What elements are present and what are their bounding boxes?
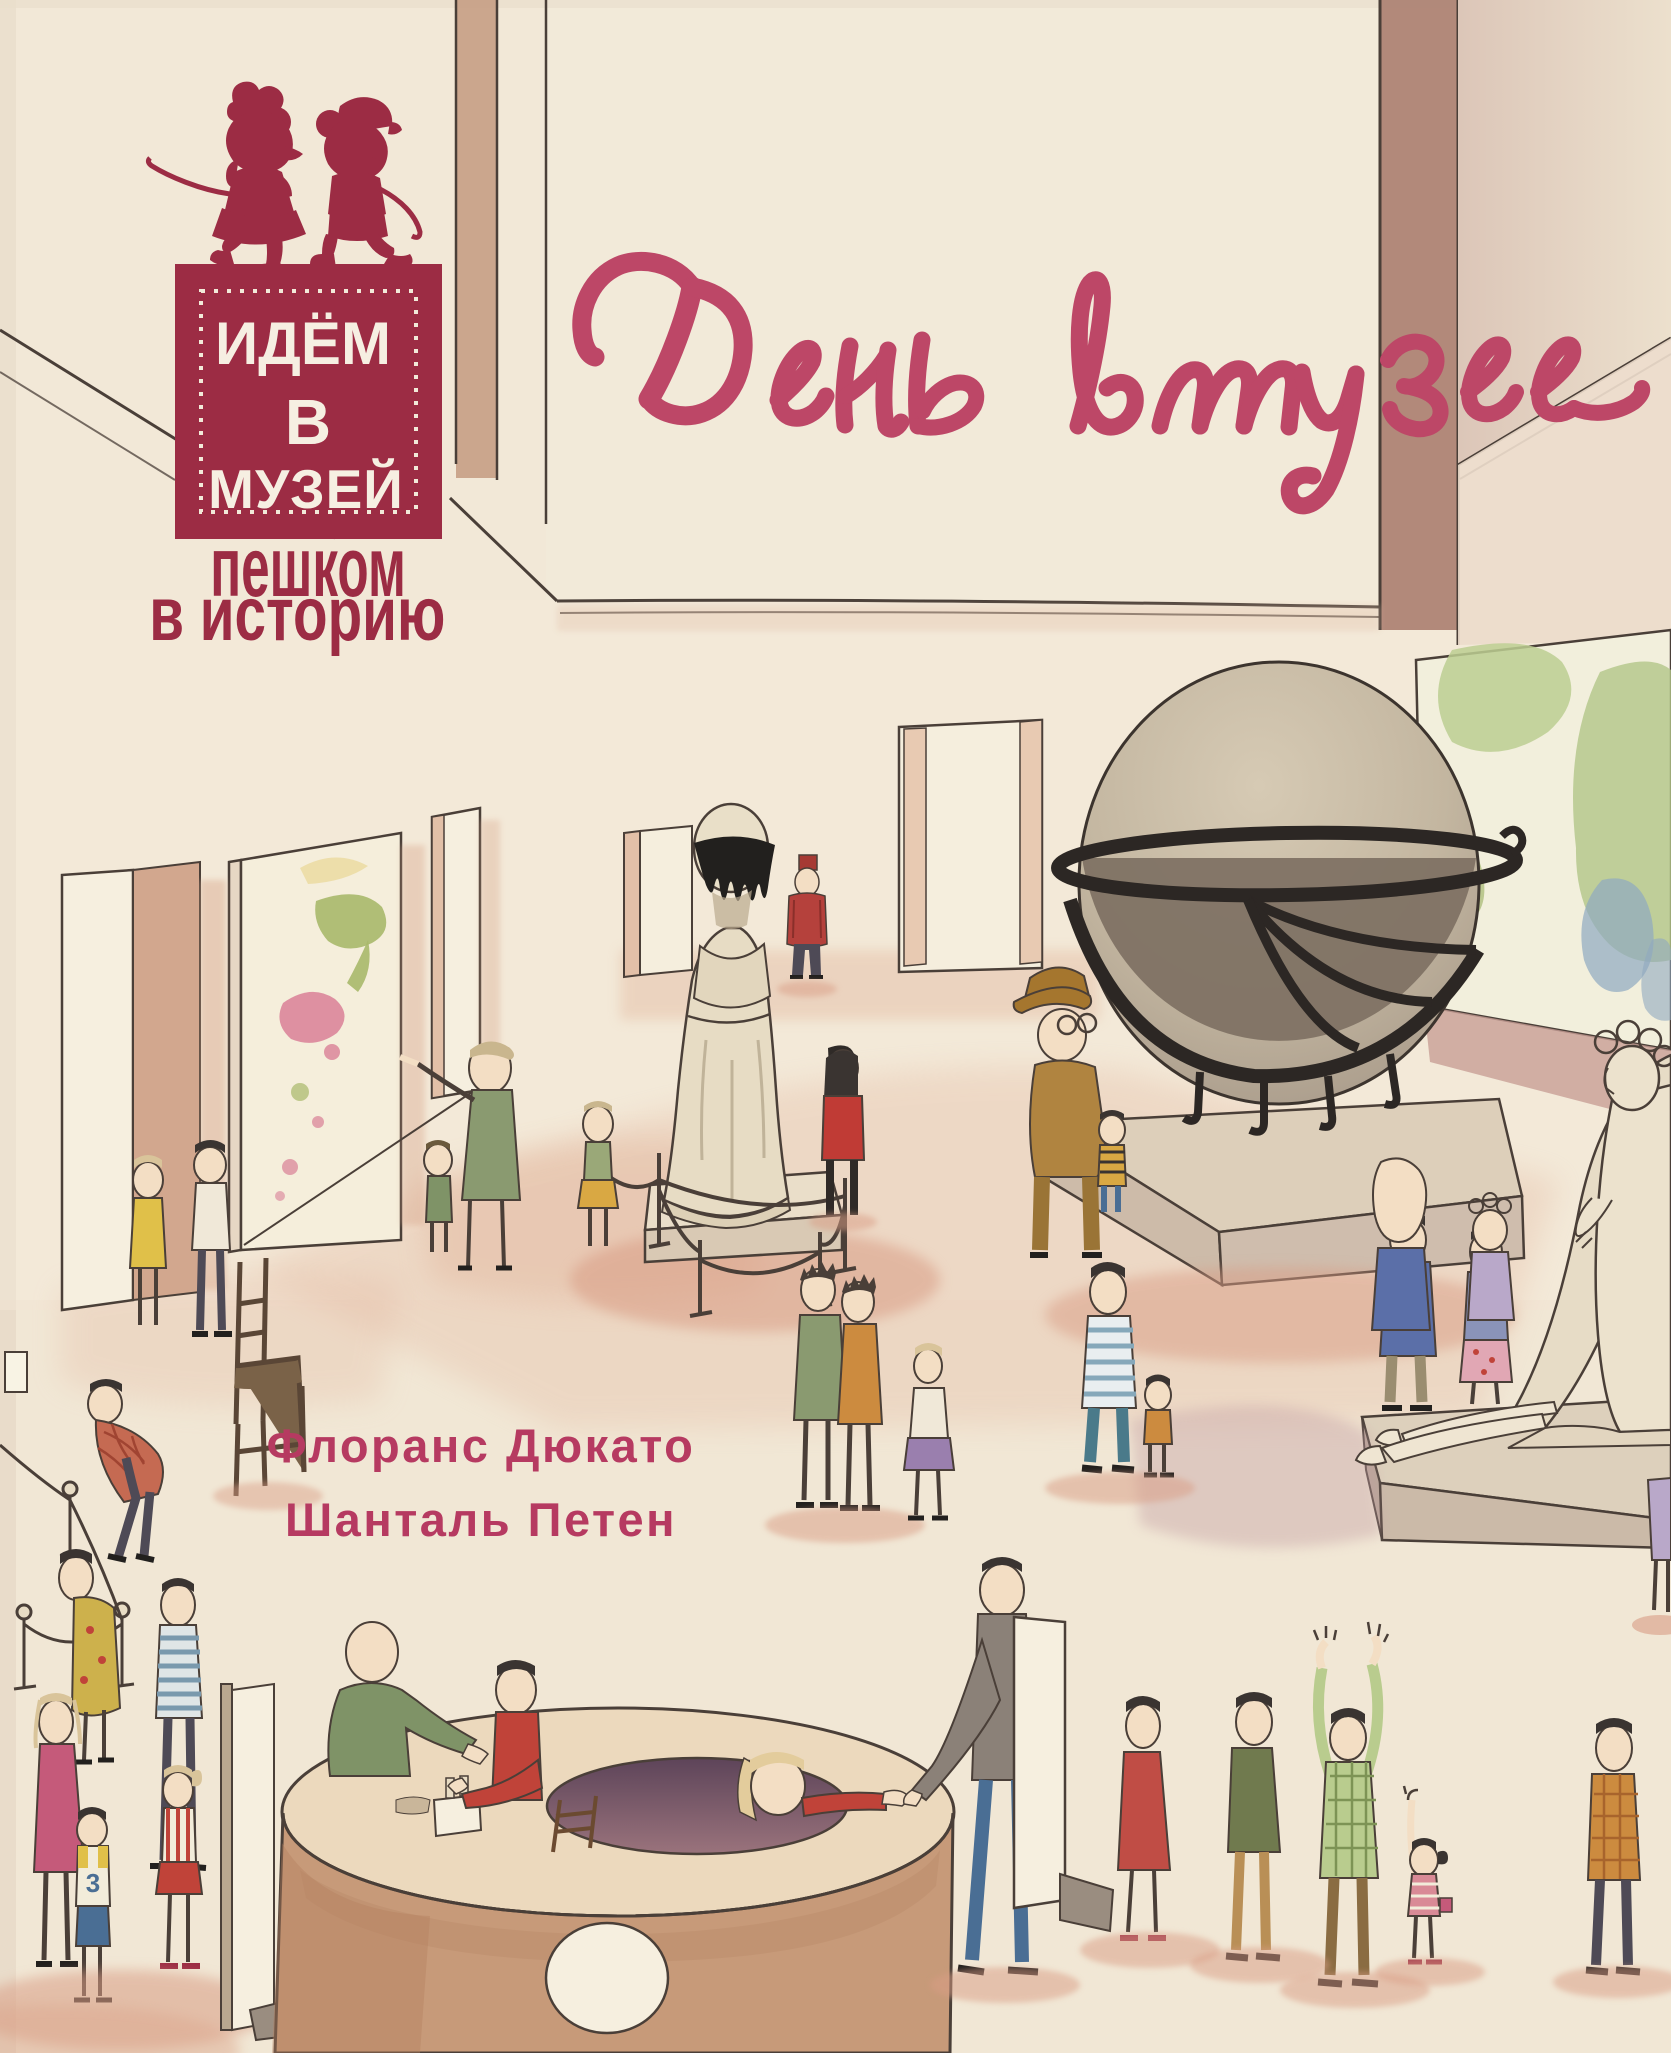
svg-text:В: В: [285, 386, 331, 458]
svg-text:3: 3: [86, 1868, 100, 1898]
svg-text:в историю: в историю: [149, 572, 445, 657]
svg-text:МУЗЕЙ: МУЗЕЙ: [208, 457, 404, 520]
svg-text:Шанталь Петен: Шанталь Петен: [285, 1493, 677, 1546]
svg-text:ИДЁМ: ИДЁМ: [215, 310, 391, 377]
svg-text:Флоранс Дюкато: Флоранс Дюкато: [267, 1419, 696, 1472]
